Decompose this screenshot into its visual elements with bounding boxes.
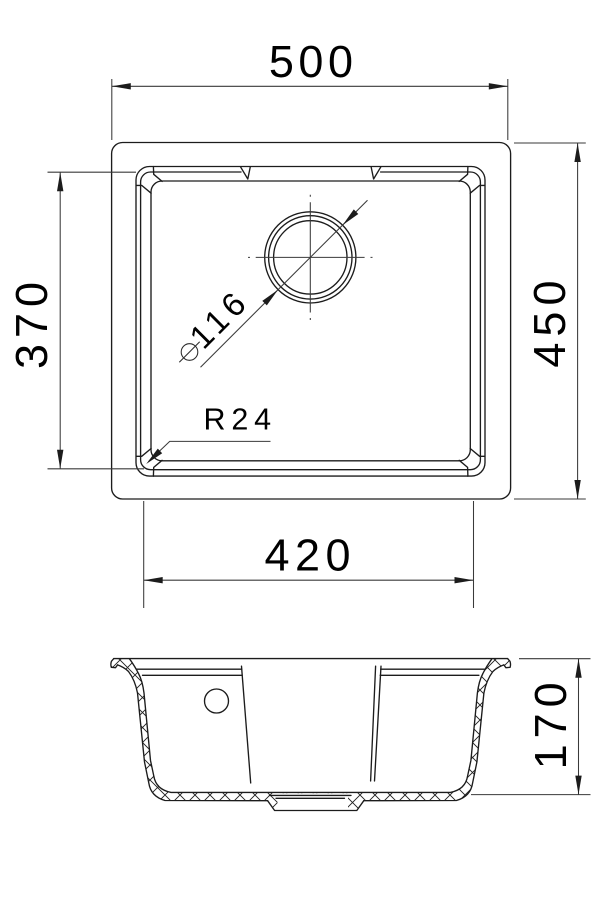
svg-text:420: 420	[265, 529, 357, 580]
svg-text:500: 500	[269, 36, 358, 87]
svg-text:370: 370	[6, 276, 57, 369]
svg-text:170: 170	[525, 676, 576, 769]
svg-text:R24: R24	[204, 403, 277, 437]
svg-text:450: 450	[524, 275, 575, 368]
